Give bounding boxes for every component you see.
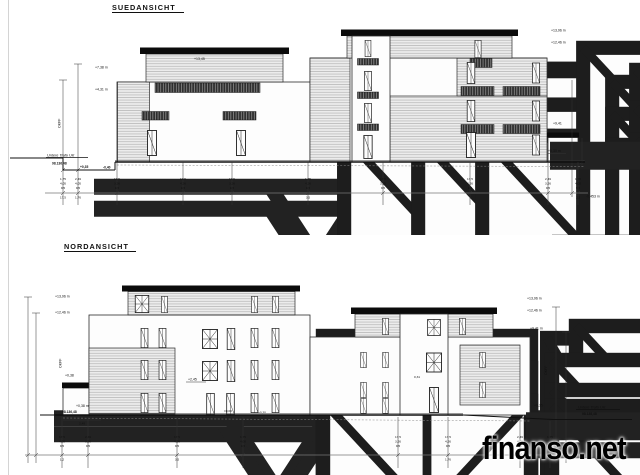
- elev-right-top: +13,96 m: [527, 297, 542, 301]
- right-roof-slab: [341, 30, 518, 37]
- elev-left-top: +13,96 m: [55, 295, 70, 299]
- right-roof-slab: [351, 308, 497, 315]
- stair-annotation: 0,31: [414, 375, 420, 379]
- garage-elev: +0,38: [65, 374, 74, 378]
- elev-right-mid: +12,46 m: [527, 309, 542, 313]
- watermark: finanso.net: [482, 430, 626, 467]
- okff-label: OKFF: [544, 366, 548, 375]
- roof-annotation: +13,45: [194, 57, 205, 61]
- ground-ann-1: +0,35: [80, 165, 89, 169]
- elev-030: +0,30 m: [548, 149, 561, 153]
- svg-text:1,754,059,517,5: 1,754,059,517,5: [60, 177, 66, 200]
- garage-value: +0,38 m: [76, 404, 89, 408]
- sued-elevation-drawing: SUEDANSICHT OKFF +7,38 m +4,31 m: [0, 0, 640, 235]
- dim-cluster: 17,53,269,5: [229, 162, 235, 205]
- nord-title: NORDANSICHT: [64, 242, 129, 251]
- ground-ann-2: -0,40: [103, 166, 111, 170]
- okff-label: OKFF: [59, 359, 63, 368]
- garage-dim: 2,49: [79, 422, 85, 426]
- datum-end-label: -0,453 m: [586, 195, 600, 199]
- elev-941: +9,41: [553, 122, 562, 126]
- dim-cluster: 1,754,269,53,5: [305, 162, 311, 205]
- elev-941: +9,41 m: [530, 327, 543, 331]
- dim-cluster: 1,754,059,517,5: [60, 177, 66, 200]
- elev-left-mid: +12,46 m: [55, 311, 70, 315]
- sued-title-group: SUEDANSICHT: [112, 3, 184, 13]
- left-attic-wall: [128, 292, 295, 316]
- sued-title: SUEDANSICHT: [112, 3, 176, 12]
- trafo-label: Untere Trafo UK: [578, 406, 606, 410]
- attic-balcony-railing: [155, 83, 260, 93]
- mid-cladding-column: [310, 58, 350, 162]
- left-facade-cladding: [118, 82, 150, 162]
- elev-035: +0,35: [534, 404, 543, 408]
- mid-annotation: +2,45: [188, 378, 197, 382]
- zero-annotation: ±0,00: [224, 409, 232, 413]
- side-wall-cap: [547, 133, 579, 138]
- dim-cluster: 17,54,269,5: [180, 162, 186, 205]
- elev-top-right-2: +12,46 m: [551, 41, 566, 45]
- architectural-drawing-page: SUEDANSICHT OKFF +7,38 m +4,31 m: [0, 0, 640, 475]
- left-roof-slab: [122, 286, 300, 292]
- right-facade-cladding: [460, 345, 520, 405]
- elev-top-right-1: +13,96 m: [551, 29, 566, 33]
- svg-text:2,494,059,51,76: 2,494,059,51,76: [75, 177, 81, 200]
- nord-title-group: NORDANSICHT: [64, 242, 136, 252]
- dim-cluster: 2,494,059,51,76: [75, 177, 81, 200]
- trafo-value: 98.136,48: [52, 162, 67, 166]
- okff-label: OKFF: [58, 119, 62, 128]
- svg-text:2,493,269,5: 2,493,269,5: [85, 435, 91, 448]
- elev-left-mid: +4,31 m: [95, 88, 108, 92]
- left-ground-value: 98.136,48: [62, 410, 77, 414]
- p030-annotation: +0,30: [258, 411, 266, 415]
- left-roof-slab: [140, 48, 289, 55]
- trafo-label: Untere Trafo UK: [47, 154, 75, 158]
- elev-left-top: +7,38 m: [95, 66, 108, 70]
- left-attic-wall: [146, 54, 283, 82]
- page-edge-line: [8, 0, 9, 475]
- trafo-value: 98.138,48: [582, 412, 597, 416]
